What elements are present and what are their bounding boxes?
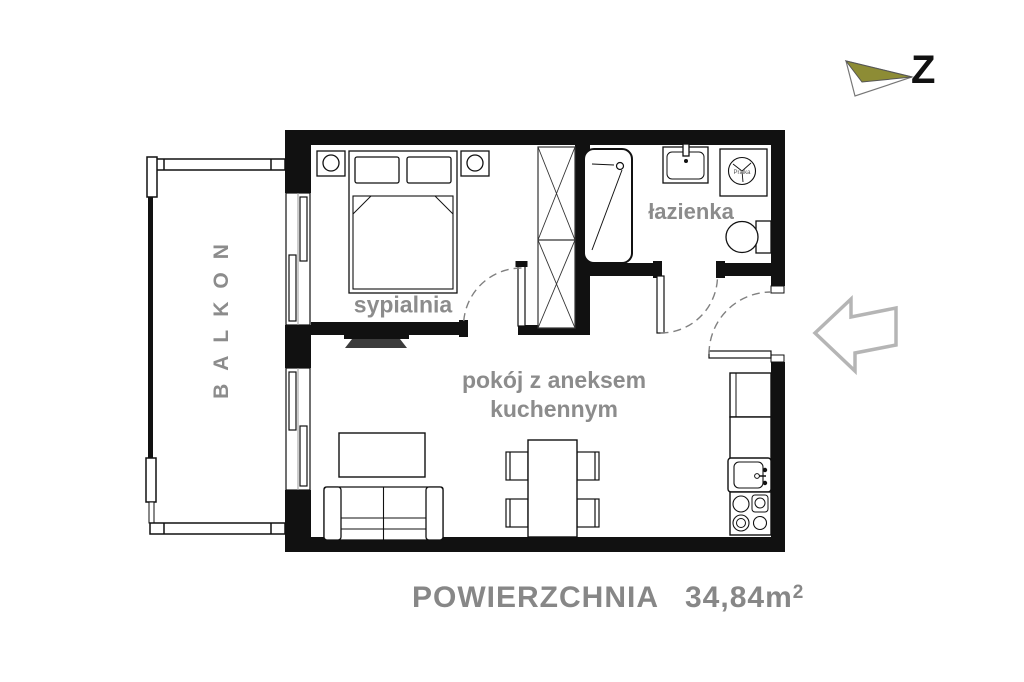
door-entry	[709, 292, 771, 358]
compass-arrow-icon	[846, 61, 912, 96]
washing-machine-label: Pralka	[733, 170, 751, 176]
entry-opening-caps	[771, 286, 784, 362]
dining-table	[528, 440, 577, 537]
kitchen-counter	[730, 417, 771, 460]
nightstand-right	[461, 151, 489, 176]
living-room-label-line2: kuchennym	[462, 395, 646, 424]
kitchen-sink	[728, 458, 771, 492]
toilet	[726, 221, 771, 253]
bathroom-label: łazienka	[648, 199, 734, 225]
area-line: POWIERZCHNIA34,84m2	[412, 581, 803, 615]
tv-on-wall	[344, 333, 409, 348]
fridge	[730, 373, 771, 417]
floorplan-drawing: Pralka	[0, 0, 1024, 682]
balcony-window-bedroom	[286, 193, 310, 325]
coffee-table	[339, 433, 425, 477]
door-bathroom	[657, 276, 718, 333]
bedroom-label: sypialnia	[354, 292, 452, 319]
cooktop	[730, 492, 771, 535]
balcony-label: BALKON	[210, 231, 234, 399]
living-room-label-line1: pokój z aneksem	[462, 366, 646, 395]
sofa	[324, 487, 443, 540]
washing-machine: Pralka	[720, 149, 767, 196]
area-superscript: 2	[793, 582, 804, 603]
compass-letter: Z	[911, 50, 935, 90]
door-bedroom	[464, 261, 528, 326]
entry-arrow	[815, 299, 896, 371]
nightstand-left	[317, 151, 345, 176]
area-value: 34,84m	[685, 581, 793, 614]
living-room-label: pokój z aneksem kuchennym	[462, 366, 646, 424]
balcony-window-living	[286, 368, 310, 490]
shower	[584, 149, 632, 263]
double-bed	[349, 151, 457, 293]
area-label: POWIERZCHNIA	[412, 581, 659, 614]
wardrobe	[538, 147, 575, 328]
floorplan-canvas: Pralka	[0, 0, 1024, 682]
washbasin	[663, 144, 708, 183]
